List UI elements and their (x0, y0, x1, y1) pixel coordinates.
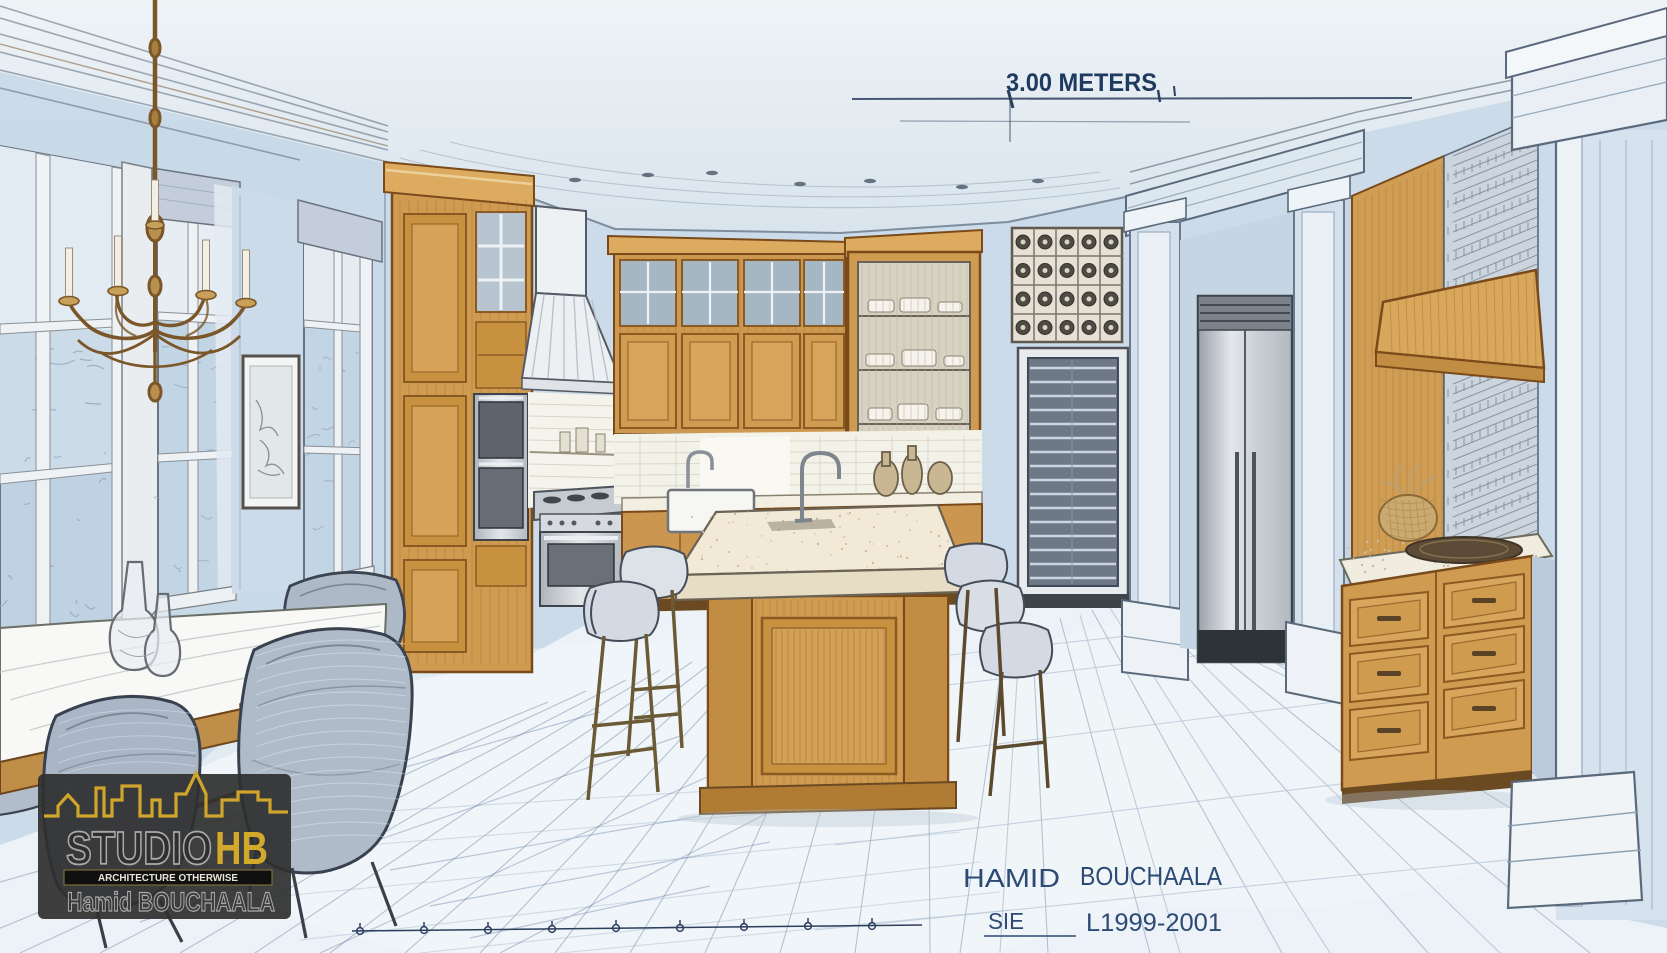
svg-text:STUDIO: STUDIO (66, 822, 212, 874)
svg-text:BOUCHAALA: BOUCHAALA (1080, 861, 1223, 891)
svg-text:HB: HB (215, 822, 268, 874)
svg-text:SIE: SIE (988, 908, 1024, 934)
svg-text:L1999-2001: L1999-2001 (1086, 909, 1222, 937)
svg-text:ARCHITECTURE OTHERWISE: ARCHITECTURE OTHERWISE (98, 873, 238, 884)
svg-text:3.00 METERS: 3.00 METERS (1006, 69, 1157, 97)
svg-text:Hamid BOUCHAALA: Hamid BOUCHAALA (67, 887, 275, 917)
svg-text:HAMID: HAMID (963, 863, 1060, 893)
